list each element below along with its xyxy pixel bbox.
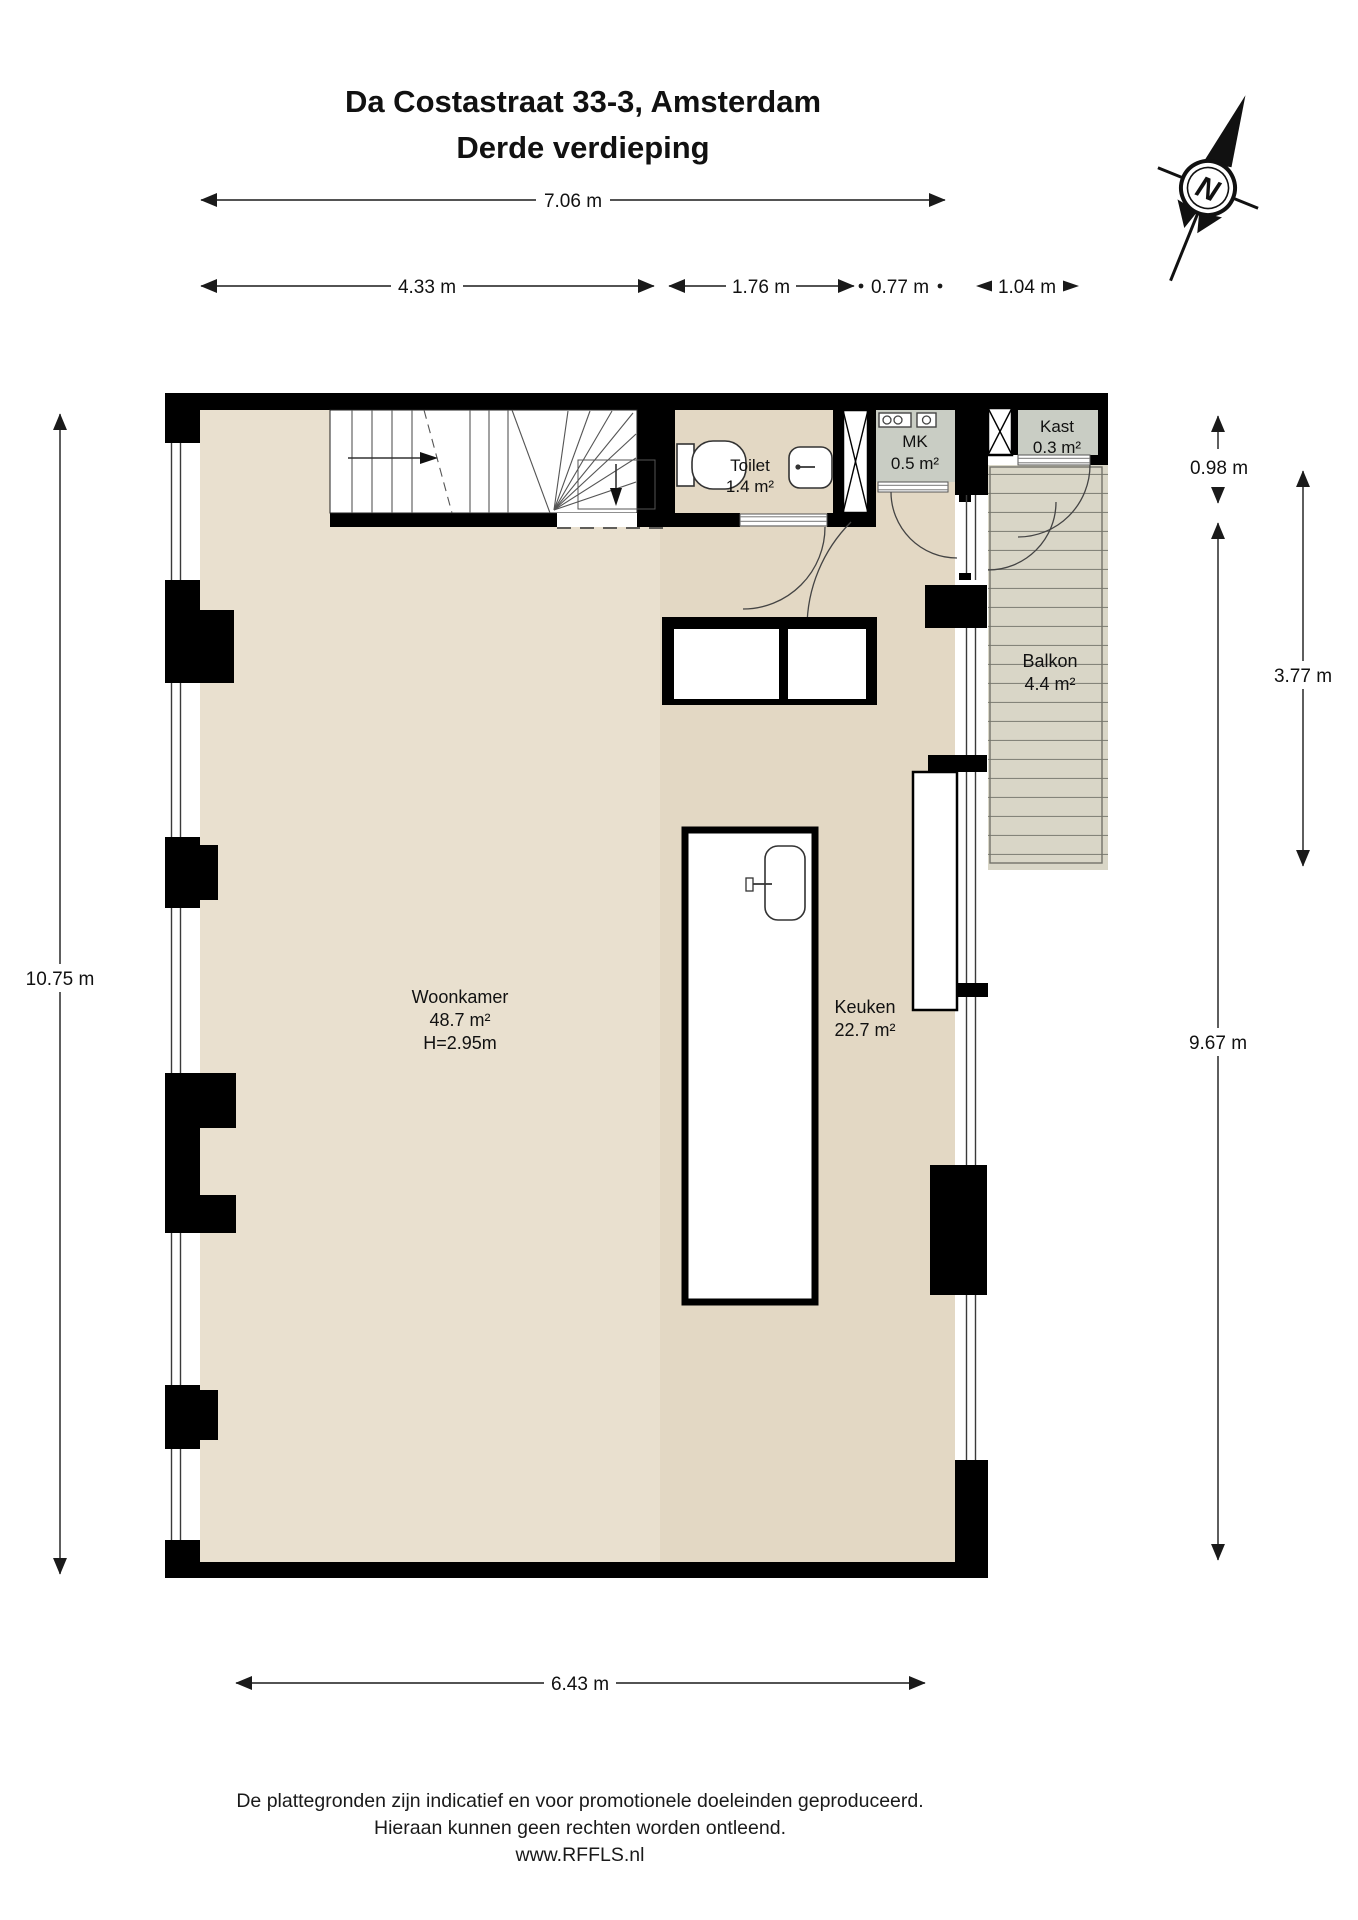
window-icon [165,1449,200,1540]
page-title: Da Costastraat 33-3, Amsterdam [345,84,821,119]
window-icon [165,683,200,837]
window-icon [967,997,976,1165]
toilet-label: Toilet [730,456,770,475]
bottom-wall [165,1562,988,1578]
window-icon [165,443,200,580]
dim-top-seg-3: 0.77 m [871,277,929,298]
mk-area: 0.5 m² [891,454,940,473]
window-icon [165,908,200,1073]
floorplan-drawing: Da Costastraat 33-3, Amsterdam Derde ver… [0,0,1358,1920]
island-sink-icon [765,846,805,920]
balkon-area: 4.4 m² [1024,674,1075,694]
dim-right-balcony: 3.77 m [1274,666,1332,687]
dim-top-seg-1: 4.33 m [398,277,456,298]
kitchen-island [685,830,815,1302]
kast-label: Kast [1040,417,1074,436]
mk-label: MK [902,432,928,451]
footer-disclaimer: De plattegronden zijn indicatief en voor… [236,1790,923,1866]
balkon-label: Balkon [1022,651,1077,671]
window-icon [967,772,976,983]
dim-top-seg-4: 1.04 m [998,277,1056,298]
toilet-area: 1.4 m² [726,477,775,496]
woonkamer-area: 48.7 m² [429,1010,490,1030]
window-icon [967,628,976,755]
dim-top-total: 7.06 m [544,191,602,212]
page-subtitle: Derde verdieping [456,130,709,165]
window-icon [165,1233,200,1385]
shaft-icon [843,410,868,513]
footer-line-1: De plattegronden zijn indicatief en voor… [236,1790,923,1812]
woonkamer-label: Woonkamer [412,987,509,1007]
wall-counter [913,772,957,1010]
keuken-area: 22.7 m² [834,1020,895,1040]
sink-icon [789,447,832,488]
dim-left-total: 10.75 m [26,969,95,990]
shaft-icon [988,408,1012,455]
staircase [330,410,672,528]
dim-top-seg-2: 1.76 m [732,277,790,298]
footer-line-2: Hieraan kunnen geen rechten worden ontle… [374,1817,786,1839]
title-block: Da Costastraat 33-3, Amsterdam Derde ver… [345,84,821,165]
balcony-door-icon [959,495,976,580]
floorplan-page: Da Costastraat 33-3, Amsterdam Derde ver… [0,0,1358,1920]
top-right-wall [1098,393,1108,465]
footer-website: www.RFFLS.nl [515,1844,645,1866]
keuken-label: Keuken [834,997,895,1017]
compass-rose-icon: N [1120,75,1295,301]
woonkamer-floor [200,410,660,1562]
kast-area: 0.3 m² [1033,438,1082,457]
dim-bottom: 6.43 m [551,1674,609,1695]
meter-cupboard-icons [879,413,936,427]
dim-right-main: 9.67 m [1189,1033,1247,1054]
right-windows [959,495,976,1460]
woonkamer-height: H=2.95m [423,1033,497,1053]
dim-right-upper: 0.98 m [1190,458,1248,479]
stair-landing [557,513,637,527]
window-icon [967,1295,976,1460]
stair-toilet-wall [637,410,675,513]
